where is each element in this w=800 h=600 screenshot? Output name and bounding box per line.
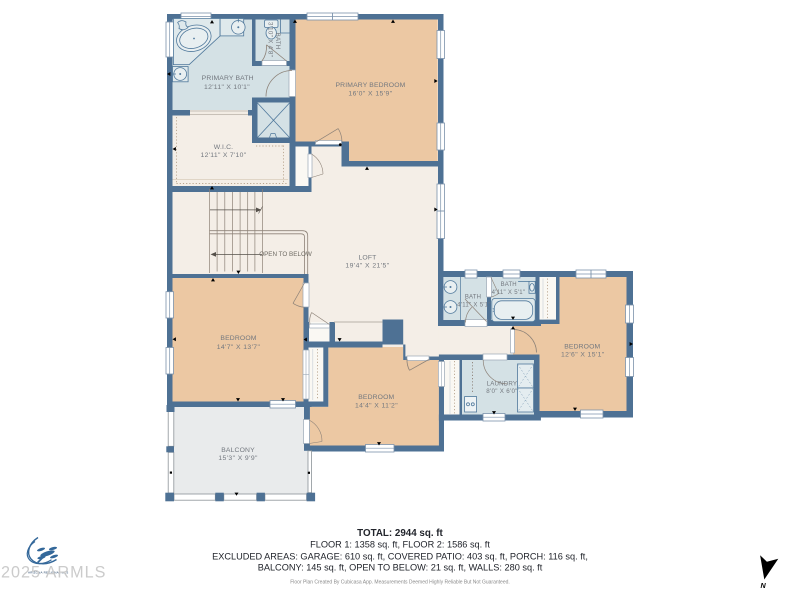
svg-text:BEDROOM: BEDROOM [564,343,600,350]
svg-text:16'0" X 15'9": 16'0" X 15'9" [348,90,392,97]
svg-text:12'6" X 15'1": 12'6" X 15'1" [561,352,605,359]
svg-text:Floor Plan Created By Cubicasa: Floor Plan Created By Cubicasa App. Meas… [290,580,510,586]
svg-text:BALCONY: BALCONY [221,447,255,454]
svg-text:W.I.C.: W.I.C. [214,144,233,151]
svg-text:N: N [761,581,767,590]
svg-text:EXCLUDED AREAS: GARAGE: 610 sq: EXCLUDED AREAS: GARAGE: 610 sq. ft, COVE… [212,552,588,562]
svg-text:12'11" X 7'10": 12'11" X 7'10" [201,152,247,159]
svg-text:3'10" X 4'8": 3'10" X 4'8" [267,22,274,57]
svg-text:LAUNDRY: LAUNDRY [487,380,518,387]
svg-text:4'11" X 5'1": 4'11" X 5'1" [492,290,526,296]
svg-text:TOTAL: 2944 sq. ft: TOTAL: 2944 sq. ft [357,528,443,539]
svg-text:4'11" X 5'1": 4'11" X 5'1" [457,303,491,309]
svg-text:14'7" X 13'7": 14'7" X 13'7" [217,344,261,351]
svg-text:OPEN TO BELOW: OPEN TO BELOW [259,251,312,258]
svg-text:14'4" X 11'2": 14'4" X 11'2" [355,403,398,410]
svg-text:12'11" X 10'1": 12'11" X 10'1" [204,84,250,91]
svg-text:19'4" X 21'5": 19'4" X 21'5" [345,262,389,269]
svg-text:2025 ARMLS: 2025 ARMLS [1,564,106,582]
svg-text:BATH: BATH [501,282,517,288]
svg-text:BEDROOM: BEDROOM [220,335,256,342]
svg-text:BATH: BATH [274,33,281,50]
svg-text:BEDROOM: BEDROOM [358,394,394,401]
svg-text:8'0" X 6'0": 8'0" X 6'0" [486,388,517,395]
svg-text:PRIMARY BEDROOM: PRIMARY BEDROOM [336,82,406,89]
svg-text:BATH: BATH [465,295,481,301]
svg-text:BALCONY: 145 sq. ft, OPEN TO B: BALCONY: 145 sq. ft, OPEN TO BELOW: 21 s… [258,563,543,573]
svg-text:PRIMARY BATH: PRIMARY BATH [202,75,254,82]
svg-text:LOFT: LOFT [359,254,377,261]
svg-text:FLOOR 1: 1358 sq. ft, FLOOR 2:: FLOOR 1: 1358 sq. ft, FLOOR 2: 1586 sq. … [310,539,490,549]
svg-text:15'3" X 9'9": 15'3" X 9'9" [218,455,258,462]
